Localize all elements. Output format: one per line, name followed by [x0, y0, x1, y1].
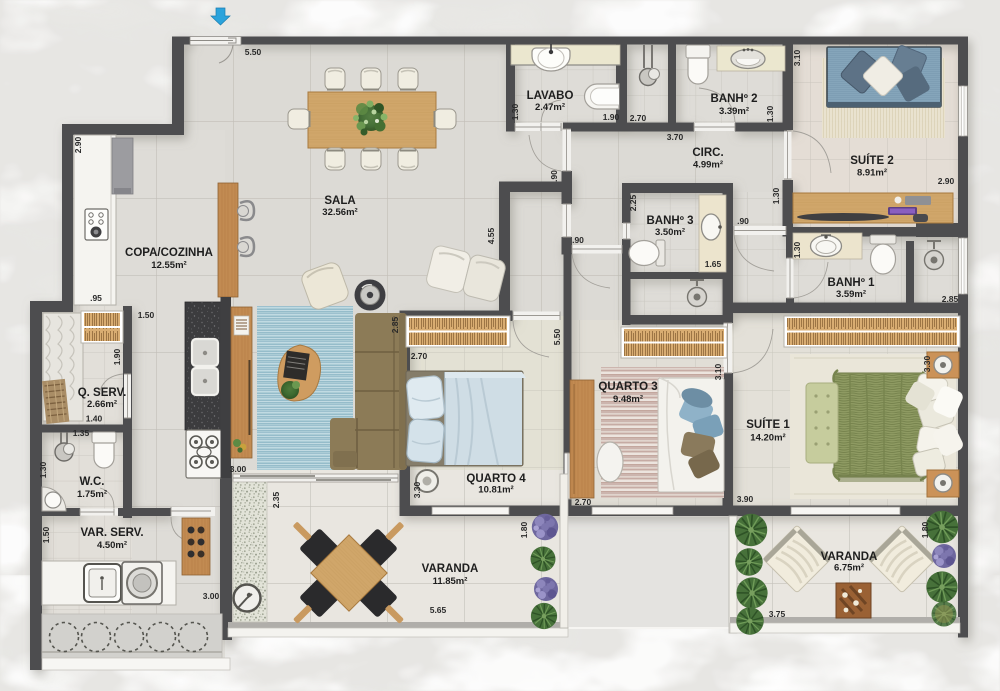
svg-text:4.50m²: 4.50m² — [97, 540, 127, 551]
svg-text:3.39m²: 3.39m² — [719, 106, 749, 117]
svg-text:1.35: 1.35 — [73, 428, 90, 438]
svg-text:12.55m²: 12.55m² — [151, 260, 186, 271]
svg-text:10.81m²: 10.81m² — [478, 485, 513, 496]
svg-text:3.00: 3.00 — [203, 591, 220, 601]
svg-text:1.30: 1.30 — [771, 187, 781, 204]
svg-text:VAR. SERV.: VAR. SERV. — [80, 527, 143, 539]
svg-text:QUARTO 4: QUARTO 4 — [466, 473, 526, 485]
svg-text:2.66m²: 2.66m² — [87, 399, 117, 410]
svg-text:2.90: 2.90 — [73, 136, 83, 153]
svg-text:W.C.: W.C. — [80, 476, 105, 488]
svg-text:3.70: 3.70 — [667, 132, 684, 142]
svg-text:3.30: 3.30 — [412, 481, 422, 498]
svg-text:3.75: 3.75 — [769, 609, 786, 619]
svg-text:BANHº 2: BANHº 2 — [710, 93, 757, 105]
svg-text:3.90: 3.90 — [737, 494, 754, 504]
svg-text:2.35: 2.35 — [271, 491, 281, 508]
svg-text:9.48m²: 9.48m² — [613, 394, 643, 405]
svg-text:1.80: 1.80 — [920, 521, 930, 538]
svg-text:14.20m²: 14.20m² — [750, 433, 785, 444]
svg-text:1.90: 1.90 — [112, 348, 122, 365]
svg-text:Q. SERV.: Q. SERV. — [78, 387, 127, 399]
svg-text:SALA: SALA — [324, 195, 355, 207]
svg-text:1.30: 1.30 — [792, 241, 802, 258]
svg-text:2.25: 2.25 — [628, 194, 638, 211]
svg-text:.90: .90 — [572, 235, 584, 245]
svg-text:3.00: 3.00 — [230, 464, 247, 474]
svg-text:CIRC.: CIRC. — [692, 147, 723, 159]
svg-text:1.30: 1.30 — [38, 461, 48, 478]
svg-text:4.55: 4.55 — [486, 227, 496, 244]
svg-text:2.70: 2.70 — [411, 351, 428, 361]
svg-text:4.99m²: 4.99m² — [693, 160, 723, 171]
svg-text:1.30: 1.30 — [510, 103, 520, 120]
svg-text:1.90: 1.90 — [603, 112, 620, 122]
svg-text:.90: .90 — [549, 170, 559, 182]
svg-text:3.10: 3.10 — [713, 363, 723, 380]
svg-text:QUARTO 3: QUARTO 3 — [598, 381, 657, 393]
svg-text:1.30: 1.30 — [765, 105, 775, 122]
svg-text:6.75m²: 6.75m² — [834, 563, 864, 574]
svg-text:2.85: 2.85 — [390, 316, 400, 333]
svg-text:5.65: 5.65 — [430, 605, 447, 615]
svg-text:32.56m²: 32.56m² — [322, 207, 357, 218]
svg-text:3.10: 3.10 — [792, 49, 802, 66]
svg-text:2.47m²: 2.47m² — [535, 102, 565, 113]
svg-text:LAVABO: LAVABO — [527, 90, 574, 102]
svg-text:BANHº 3: BANHº 3 — [646, 215, 693, 227]
svg-text:1.50: 1.50 — [138, 310, 155, 320]
svg-text:1.50: 1.50 — [41, 526, 51, 543]
svg-text:1.80: 1.80 — [519, 521, 529, 538]
svg-text:3.59m²: 3.59m² — [836, 289, 866, 300]
svg-text:1.75m²: 1.75m² — [77, 489, 107, 500]
svg-text:1.40: 1.40 — [86, 414, 103, 424]
svg-text:2.85: 2.85 — [942, 294, 959, 304]
svg-text:COPA/COZINHA: COPA/COZINHA — [125, 247, 213, 259]
svg-text:2.70: 2.70 — [575, 497, 592, 507]
svg-text:BANHº 1: BANHº 1 — [827, 277, 875, 289]
svg-text:3.50m²: 3.50m² — [655, 227, 685, 238]
svg-text:VARANDA: VARANDA — [821, 551, 878, 563]
svg-text:3.30: 3.30 — [922, 355, 932, 372]
svg-text:VARANDA: VARANDA — [422, 563, 479, 575]
svg-text:.90: .90 — [737, 216, 749, 226]
svg-text:1.65: 1.65 — [705, 259, 722, 269]
svg-text:2.90: 2.90 — [938, 176, 955, 186]
svg-text:SUÍTE 2: SUÍTE 2 — [850, 154, 893, 167]
svg-text:2.70: 2.70 — [630, 113, 647, 123]
svg-text:SUÍTE 1: SUÍTE 1 — [746, 418, 790, 431]
svg-text:5.50: 5.50 — [245, 47, 262, 57]
svg-text:8.91m²: 8.91m² — [857, 168, 887, 179]
svg-text:.95: .95 — [90, 293, 102, 303]
svg-text:11.85m²: 11.85m² — [433, 576, 468, 587]
svg-text:5.50: 5.50 — [552, 328, 562, 345]
